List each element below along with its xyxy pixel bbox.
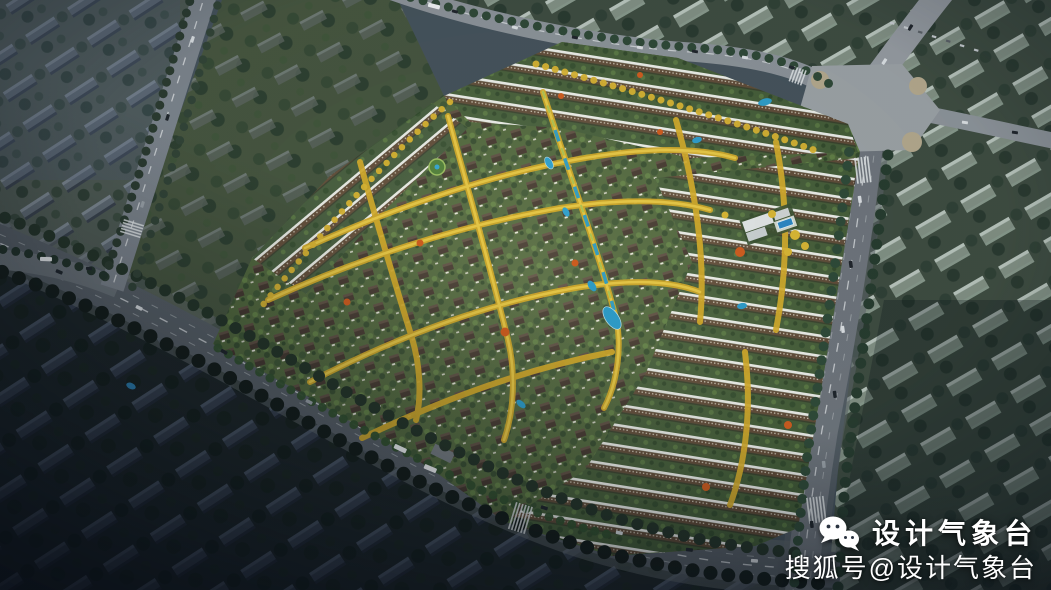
aerial-rendering: 设计气象台 搜狐号@设计气象台 — [0, 0, 1051, 590]
masterplan-scene — [0, 0, 1051, 590]
corner-shadow — [0, 0, 1051, 590]
